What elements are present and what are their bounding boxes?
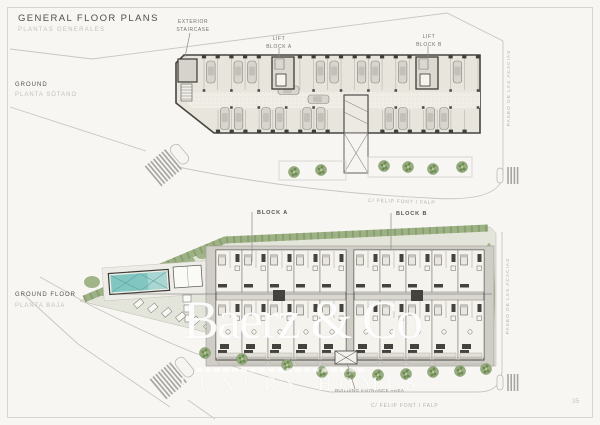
site-plan-graphics: PASEO DE LAS ACACIAS PASEO DE LAS ACACIA… [0,0,600,425]
lift-block-b-label: LIFT BLOCK B [402,34,456,50]
page-title: GENERAL FLOOR PLANS [18,13,159,24]
basement-parking-plan [176,55,480,173]
street-label-felip-lower: C/ FELIP FONT I FALP [371,403,439,409]
basement-level-label: GROUND [15,82,48,88]
basement-level-sublabel: PLANTA SÓTANO [15,92,77,98]
watermark-brand: Baerz & Co [166,289,438,351]
exterior-staircase-label: EXTERIOR STAIRCASE [166,19,220,35]
watermark-tagline-blurred [196,368,364,372]
street-label-paseo-lower: PASEO DE LAS ACACIAS [505,258,511,335]
floor-plan-sheet: PASEO DE LAS ACACIAS PASEO DE LAS ACACIA… [0,0,600,425]
street-trees-upper [289,161,468,178]
ground-level-sublabel: PLANTA BAJA [15,303,65,309]
lift-block-a-label: LIFT BLOCK A [252,36,306,52]
watermark-tagline: LUXURY HOMES [176,374,428,396]
block-a-label: BLOCK A [257,210,288,216]
page-subtitle: PLANTAS GENERALES [18,27,105,33]
page-number: 35 [572,398,579,405]
car-ramp [344,95,368,173]
block-b-label: BLOCK B [396,211,427,217]
street-label-paseo-upper: PASEO DE LAS ACACIAS [506,50,512,127]
entrance-canopy [335,351,357,364]
ground-level-label: GROUND FLOOR [15,292,76,298]
